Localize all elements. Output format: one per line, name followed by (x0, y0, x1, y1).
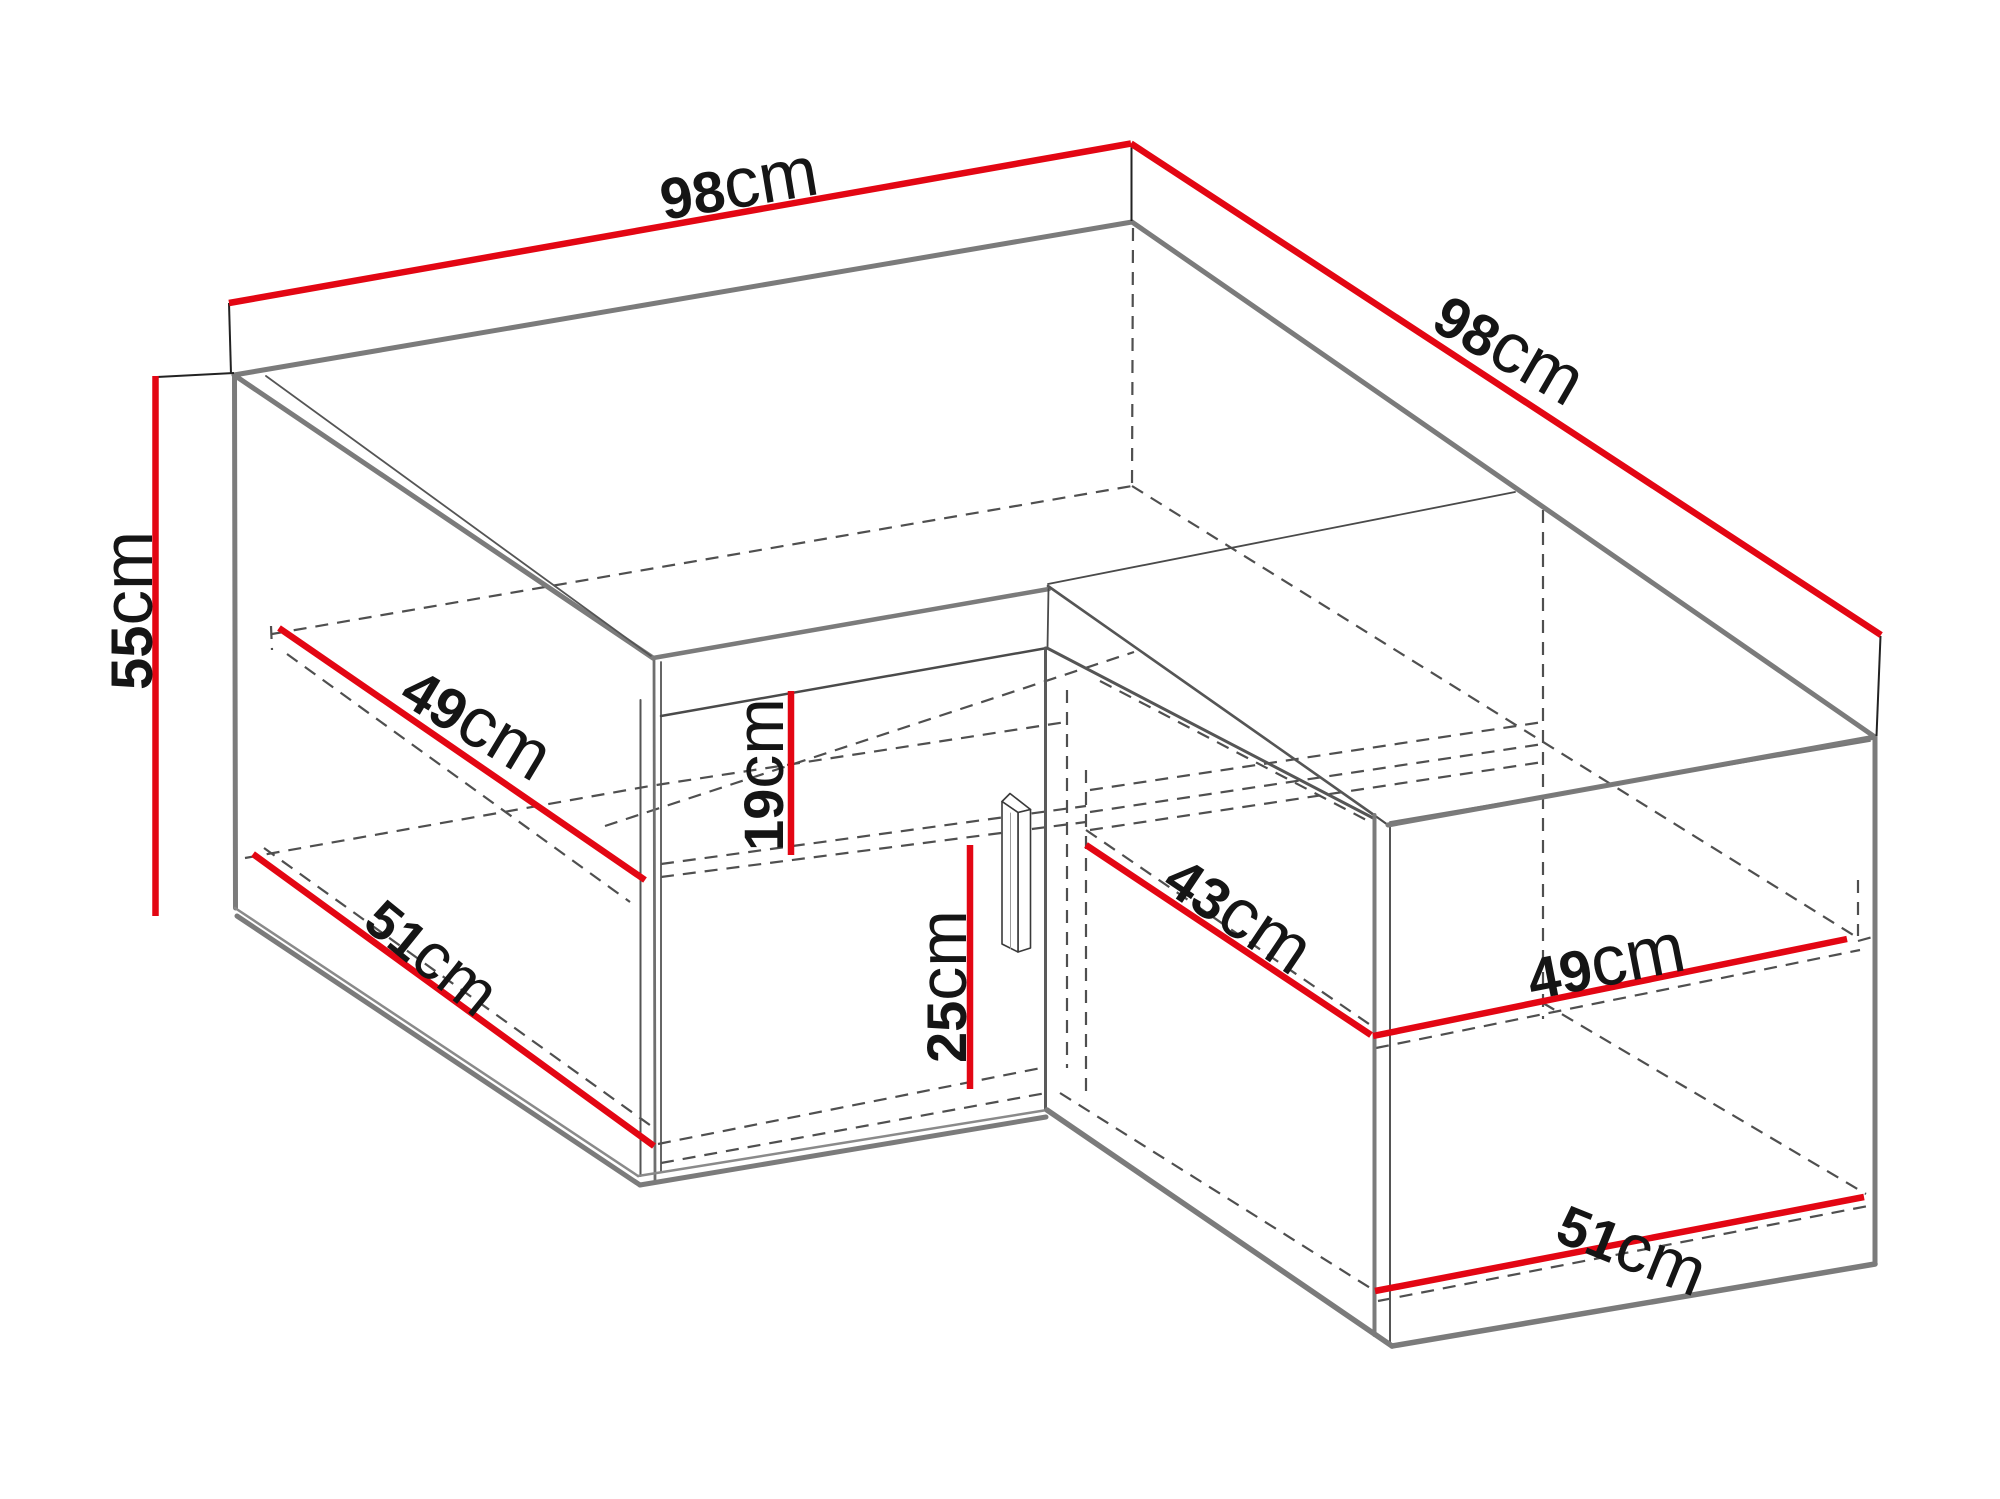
svg-text:19cm: 19cm (722, 698, 798, 851)
svg-text:25cm: 25cm (905, 910, 981, 1063)
svg-text:55cm: 55cm (89, 531, 168, 690)
